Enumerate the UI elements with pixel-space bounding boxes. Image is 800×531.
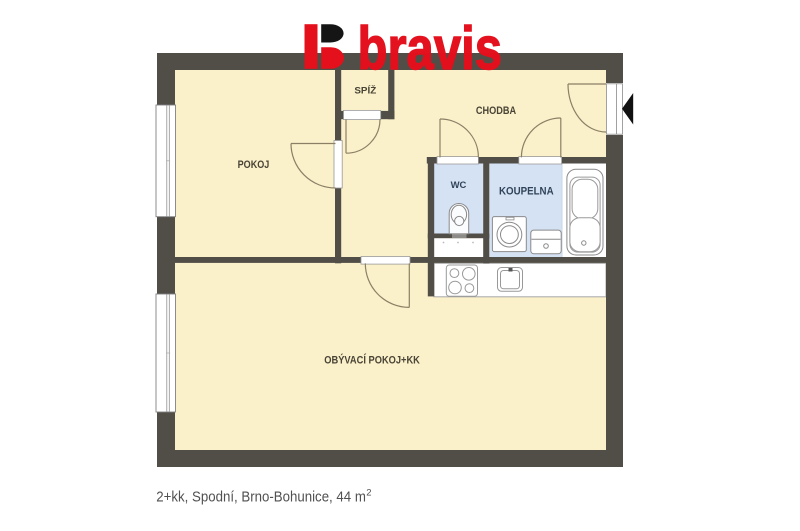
svg-text:bravis: bravis	[358, 15, 503, 82]
svg-text:KOUPELNA: KOUPELNA	[499, 185, 554, 197]
svg-text:2+kk, Spodní, Brno-Bohunice, 4: 2+kk, Spodní, Brno-Bohunice, 44 m	[156, 490, 366, 506]
svg-text:OBÝVACÍ POKOJ+KK: OBÝVACÍ POKOJ+KK	[324, 354, 420, 367]
svg-text:CHODBA: CHODBA	[476, 105, 516, 117]
svg-text:2: 2	[366, 488, 371, 499]
svg-text:SPÍŽ: SPÍŽ	[354, 84, 376, 96]
svg-text:POKOJ: POKOJ	[238, 159, 270, 171]
svg-text:WC: WC	[451, 180, 467, 191]
